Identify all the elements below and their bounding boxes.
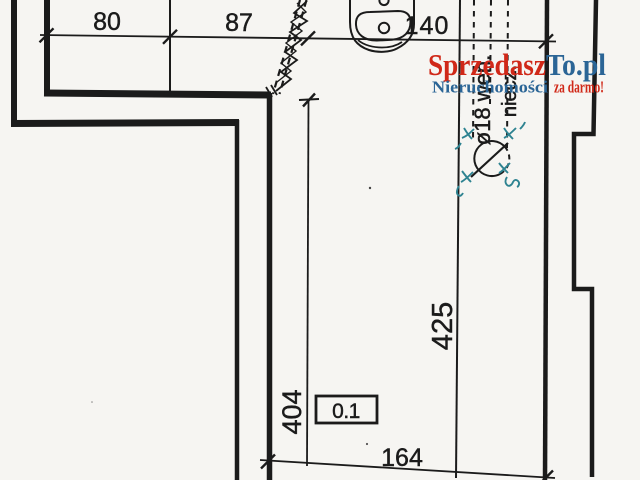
svg-text:80: 80 <box>93 8 121 36</box>
svg-text:0.1: 0.1 <box>332 400 360 423</box>
svg-text:425: 425 <box>427 302 459 350</box>
svg-text:404: 404 <box>277 389 307 434</box>
svg-text:164: 164 <box>381 444 423 472</box>
svg-text:87: 87 <box>225 9 253 37</box>
svg-text:Nieruchomościza darmo!: Nieruchomościza darmo! <box>432 78 604 97</box>
